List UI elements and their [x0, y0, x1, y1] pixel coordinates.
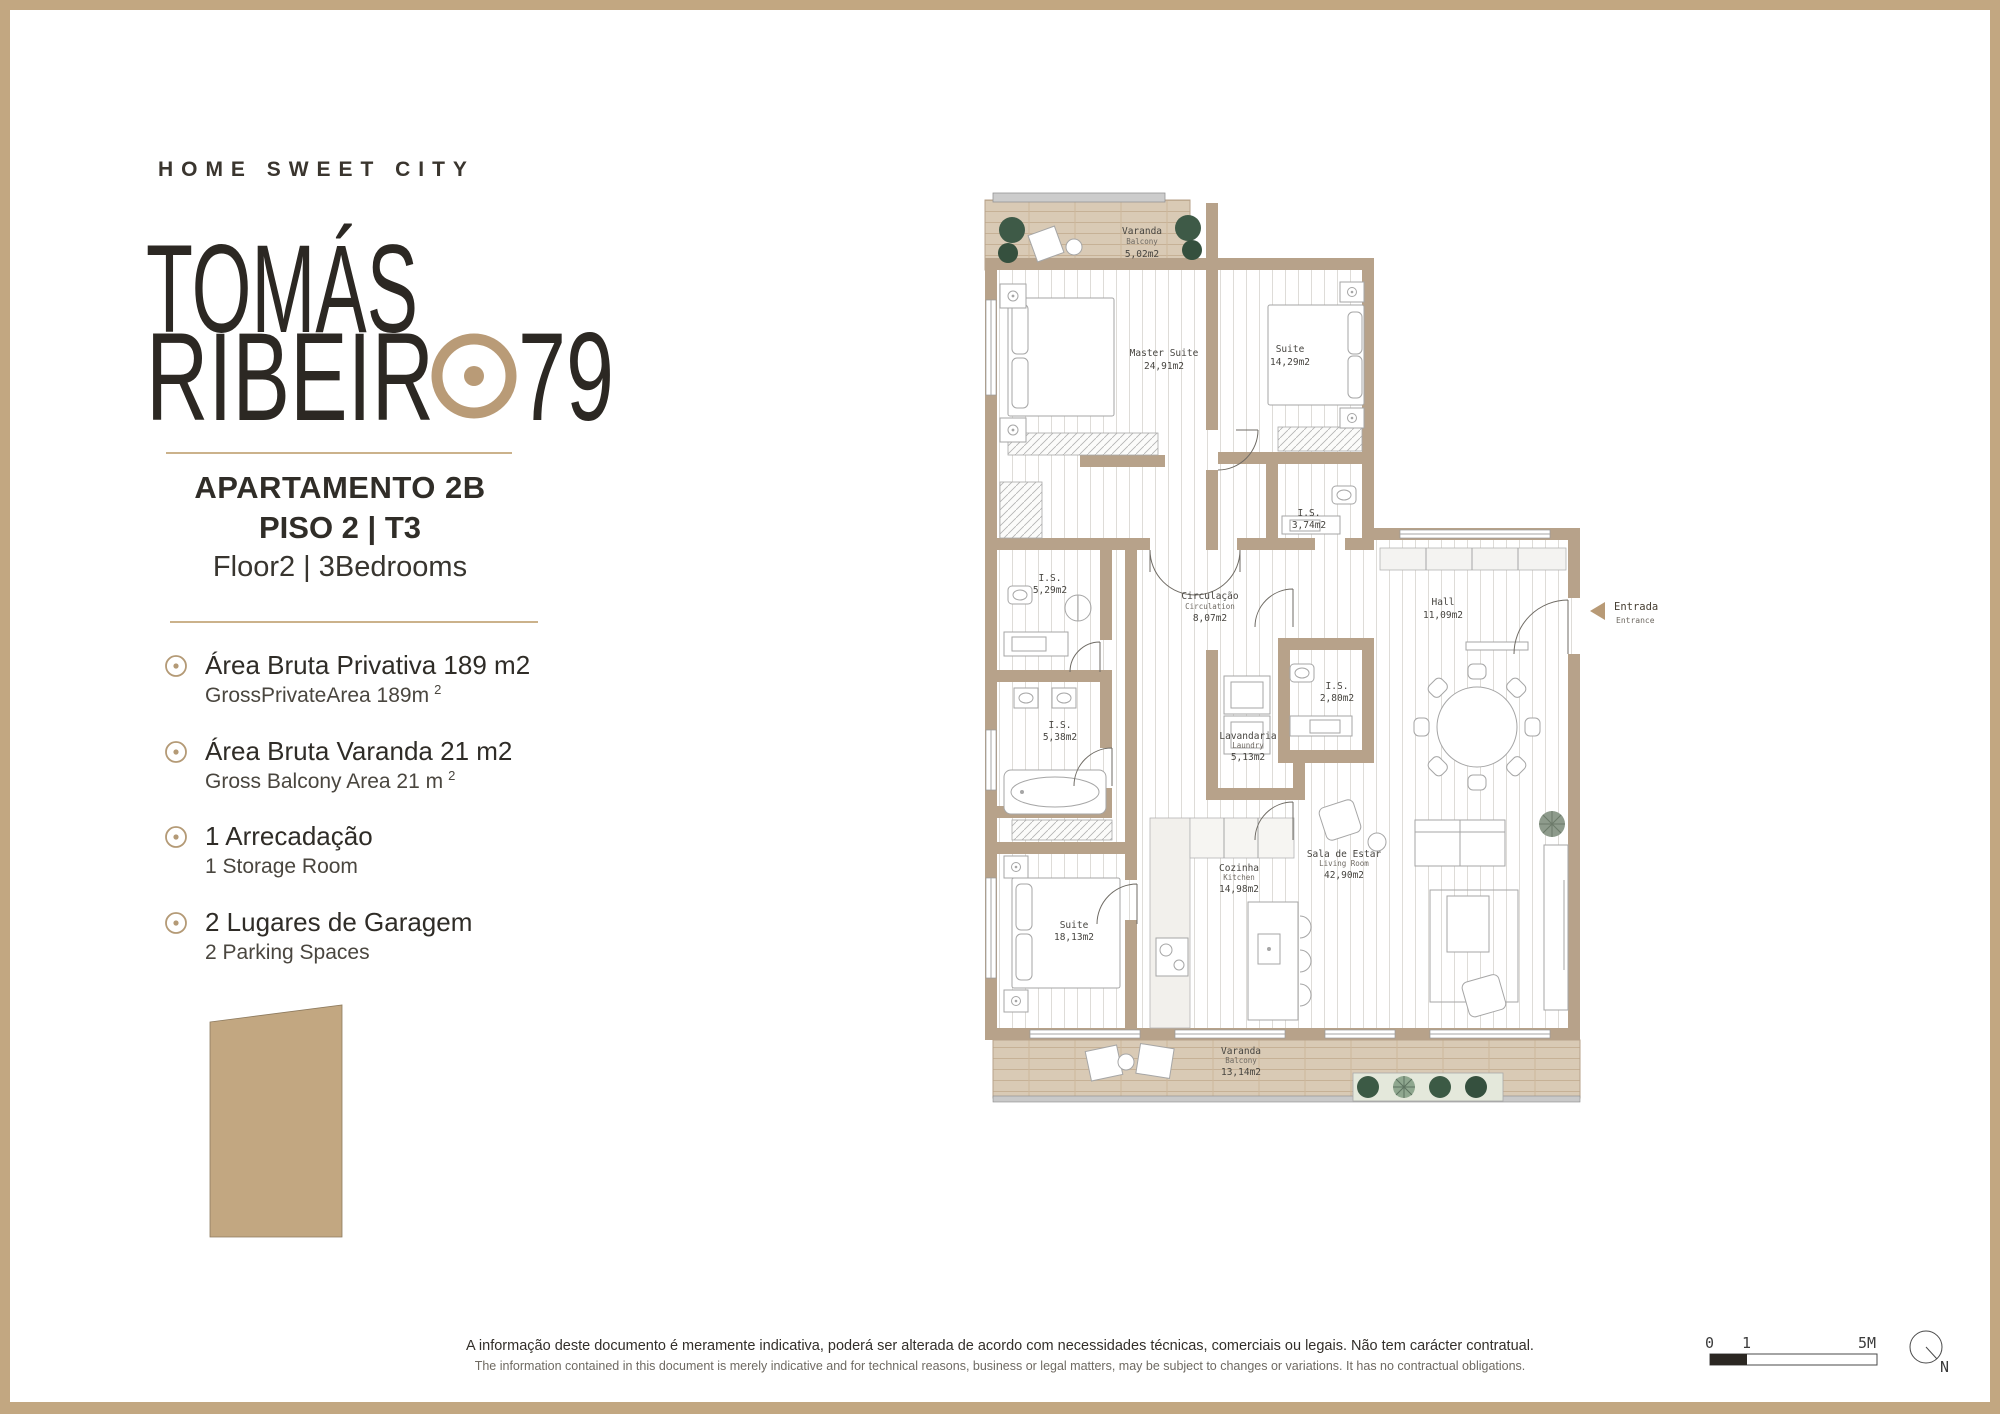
entrance-label-en: Entrance	[1616, 616, 1655, 625]
feature-en-text: 2 Parking Spaces	[205, 941, 370, 964]
logo-word-ribeiro: RIBEIR	[146, 308, 434, 446]
divider-top	[166, 452, 512, 454]
svg-text:5,38m2: 5,38m2	[1043, 732, 1077, 743]
svg-text:5,13m2: 5,13m2	[1231, 752, 1265, 763]
entrance-arrow-icon	[1590, 602, 1605, 620]
svg-text:Living Room: Living Room	[1319, 859, 1369, 868]
feature-item-balcony-area: Área Bruta Varanda 21 m2 Gross Balcony A…	[163, 736, 530, 798]
svg-text:Laundry: Laundry	[1232, 741, 1264, 750]
feature-pt: 1 Arrecadação	[205, 821, 373, 852]
svg-text:8,07m2: 8,07m2	[1193, 613, 1227, 624]
feature-en: 2 Parking Spaces	[205, 938, 472, 968]
svg-text:14,98m2: 14,98m2	[1219, 884, 1259, 895]
svg-text:5,02m2: 5,02m2	[1125, 249, 1159, 260]
svg-text:Kitchen: Kitchen	[1223, 873, 1255, 882]
brochure-page: HOME SWEET CITY TOMÁS RIBEIR 79 APARTAME…	[0, 0, 2000, 1414]
feature-en-text: GrossPrivateArea 189m	[205, 684, 429, 707]
svg-text:Balcony: Balcony	[1126, 237, 1158, 246]
svg-text:11,09m2: 11,09m2	[1423, 610, 1463, 621]
kitchen-island-icon	[1248, 902, 1298, 1020]
scale-and-compass: 0 1 5M N	[1700, 1328, 1980, 1398]
bullet-target-icon	[163, 910, 189, 936]
svg-text:14,29m2: 14,29m2	[1270, 357, 1310, 368]
svg-text:42,90m2: 42,90m2	[1324, 870, 1364, 881]
brand-tagline: HOME SWEET CITY	[158, 158, 475, 182]
bullet-target-icon	[163, 824, 189, 850]
feature-en-text: 1 Storage Room	[205, 855, 358, 878]
feature-en: GrossPrivateArea 189m2	[205, 681, 530, 711]
svg-text:Master Suite: Master Suite	[1130, 348, 1199, 359]
feature-en: 1 Storage Room	[205, 852, 373, 882]
svg-text:18,13m2: 18,13m2	[1054, 932, 1094, 943]
bullet-target-icon	[163, 739, 189, 765]
svg-text:I.S.: I.S.	[1039, 573, 1062, 584]
disclaimer: A informação deste documento é meramente…	[300, 1338, 1700, 1373]
apartment-floor-en: Floor2 | 3Bedrooms	[140, 549, 540, 587]
feature-pt: Área Bruta Privativa 189 m2	[205, 650, 530, 681]
svg-text:Suite: Suite	[1060, 920, 1089, 931]
building-key-shape	[205, 998, 345, 1240]
svg-text:Circulação: Circulação	[1181, 591, 1238, 602]
room-label-varanda-top: Varanda Balcony 5,02m2	[1122, 226, 1162, 260]
feature-item-private-area: Área Bruta Privativa 189 m2 GrossPrivate…	[163, 650, 530, 712]
svg-text:Hall: Hall	[1432, 597, 1455, 608]
room-label-cozinha: Cozinha Kitchen 14,98m2	[1219, 863, 1259, 895]
feature-en-sup: 2	[434, 682, 441, 697]
bullet-target-icon	[163, 653, 189, 679]
divider-bottom	[170, 621, 538, 623]
svg-text:Suite: Suite	[1276, 344, 1305, 355]
scale-tick-5m: 5M	[1858, 1334, 1876, 1352]
apartment-title: APARTAMENTO 2B	[140, 468, 540, 508]
feature-list: Área Bruta Privativa 189 m2 GrossPrivate…	[163, 650, 530, 993]
svg-text:I.S.: I.S.	[1049, 720, 1072, 731]
plant-icon	[1539, 811, 1565, 837]
scale-bar-filled	[1710, 1354, 1747, 1365]
north-label: N	[1940, 1358, 1949, 1376]
logo-target-circle-icon	[437, 339, 511, 413]
svg-text:Balcony: Balcony	[1225, 1056, 1257, 1065]
room-label-varanda-bottom: Varanda Balcony 13,14m2	[1221, 1046, 1261, 1078]
svg-text:I.S.: I.S.	[1326, 681, 1349, 692]
disclaimer-pt: A informação deste documento é meramente…	[300, 1338, 1700, 1354]
apartment-title-block: APARTAMENTO 2B PISO 2 | T3 Floor2 | 3Bed…	[140, 468, 540, 586]
disclaimer-en: The information contained in this docume…	[300, 1359, 1700, 1373]
north-compass-icon	[1910, 1331, 1942, 1363]
logo-number: 79	[518, 308, 614, 446]
brand-logo: TOMÁS RIBEIR 79	[140, 196, 680, 446]
feature-item-storage: 1 Arrecadação 1 Storage Room	[163, 821, 530, 883]
svg-text:I.S.: I.S.	[1298, 508, 1321, 519]
room-label-suite3: Suite 18,13m2	[1054, 920, 1094, 943]
scale-tick-1: 1	[1742, 1334, 1751, 1352]
feature-en-text: Gross Balcony Area 21 m	[205, 770, 443, 793]
svg-text:5,29m2: 5,29m2	[1033, 585, 1067, 596]
floorplan: Varanda Balcony 5,02m2 Master Suite 24,9…	[960, 190, 1660, 1135]
svg-text:Varanda: Varanda	[1122, 226, 1162, 237]
entrance-label-pt: Entrada	[1614, 601, 1658, 613]
feature-en: Gross Balcony Area 21 m2	[205, 767, 512, 797]
svg-text:24,91m2: 24,91m2	[1144, 361, 1184, 372]
feature-item-parking: 2 Lugares de Garagem 2 Parking Spaces	[163, 907, 530, 969]
feature-en-sup: 2	[448, 768, 455, 783]
svg-text:2,80m2: 2,80m2	[1320, 693, 1354, 704]
scale-tick-0: 0	[1705, 1334, 1714, 1352]
svg-text:13,14m2: 13,14m2	[1221, 1067, 1261, 1078]
entrance-marker: Entrada Entrance	[1590, 601, 1658, 625]
feature-pt: 2 Lugares de Garagem	[205, 907, 472, 938]
feature-pt: Área Bruta Varanda 21 m2	[205, 736, 512, 767]
apartment-floor-pt: PISO 2 | T3	[140, 508, 540, 548]
svg-text:3,74m2: 3,74m2	[1292, 520, 1326, 531]
railing-bar	[993, 193, 1165, 202]
svg-text:Circulation: Circulation	[1185, 602, 1235, 611]
